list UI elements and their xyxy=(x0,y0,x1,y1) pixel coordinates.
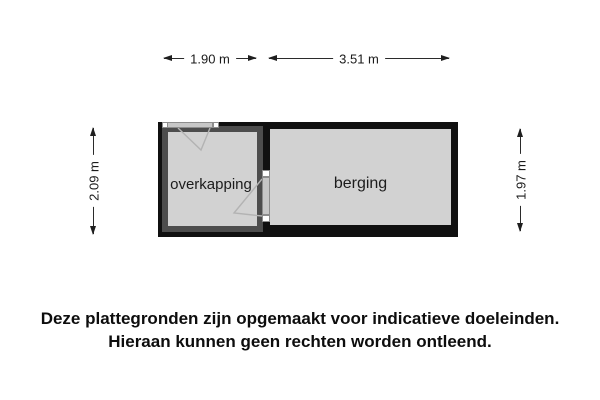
arrowhead-up-icon xyxy=(517,128,523,137)
dimension-right: 1.97 m xyxy=(514,128,527,232)
top-door xyxy=(167,122,213,128)
dimension-label: 3.51 m xyxy=(333,51,385,66)
arrowhead-right-icon xyxy=(248,55,257,61)
dimension-top-right: 3.51 m xyxy=(268,52,450,65)
dimension-left: 2.09 m xyxy=(87,127,100,235)
floorplan-page: 1.90 m 3.51 m 2.09 m 1.97 m xyxy=(0,0,600,400)
dimension-label: 2.09 m xyxy=(86,155,101,207)
dimension-label: 1.90 m xyxy=(184,51,236,66)
door-post xyxy=(162,122,168,128)
room-label-overkapping: overkapping xyxy=(158,176,264,193)
door-post xyxy=(213,122,219,128)
dimension-top-left: 1.90 m xyxy=(163,52,257,65)
door-post xyxy=(262,215,270,222)
arrowhead-left-icon xyxy=(268,55,277,61)
arrowhead-left-icon xyxy=(163,55,172,61)
arrowhead-up-icon xyxy=(90,127,96,136)
dimension-label: 1.97 m xyxy=(513,154,528,206)
arrowhead-right-icon xyxy=(441,55,450,61)
arrowhead-down-icon xyxy=(90,226,96,235)
disclaimer-line2: Hieraan kunnen geen rechten worden ontle… xyxy=(0,330,600,353)
disclaimer: Deze plattegronden zijn opgemaakt voor i… xyxy=(0,307,600,353)
disclaimer-line1: Deze plattegronden zijn opgemaakt voor i… xyxy=(0,307,600,330)
floor-plan: overkapping berging xyxy=(158,122,458,237)
arrowhead-down-icon xyxy=(517,223,523,232)
room-label-berging: berging xyxy=(270,175,451,193)
